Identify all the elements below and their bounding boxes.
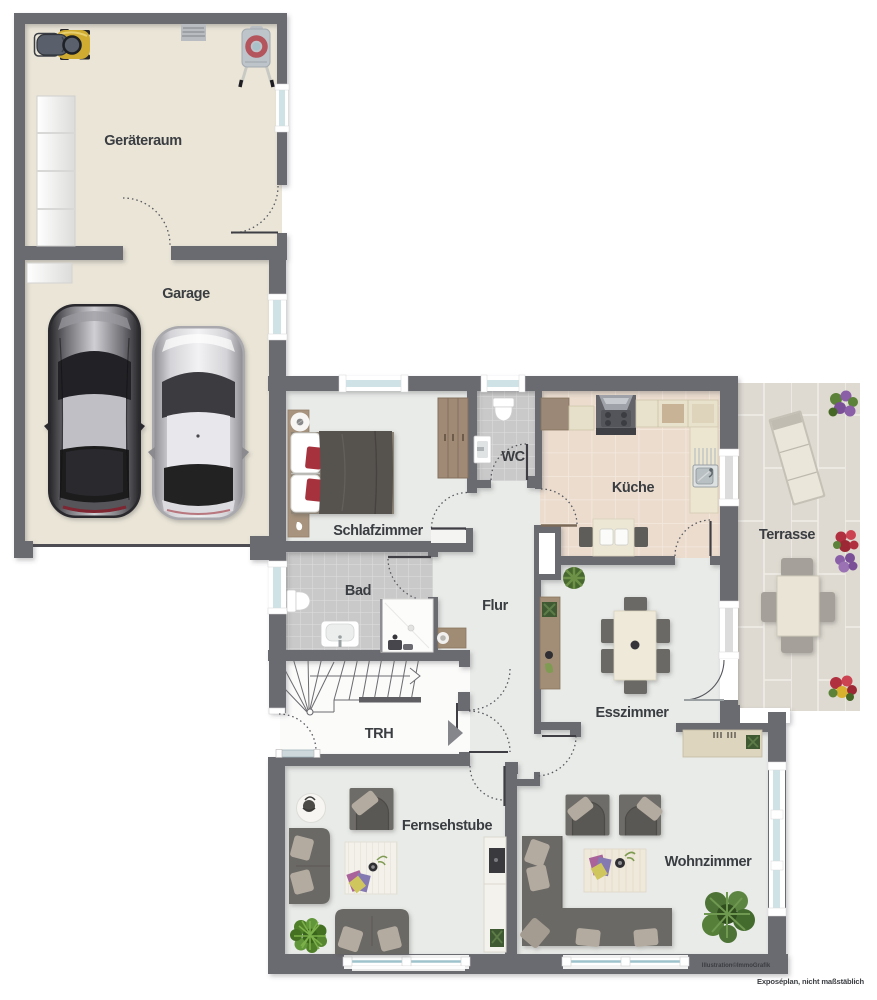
svg-text:Wohnzimmer: Wohnzimmer <box>665 854 753 870</box>
svg-text:Bad: Bad <box>345 583 371 599</box>
svg-text:Esszimmer: Esszimmer <box>596 705 670 721</box>
svg-text:TRH: TRH <box>365 726 394 742</box>
svg-text:WC: WC <box>501 449 525 465</box>
svg-text:Fernsehstube: Fernsehstube <box>402 818 493 834</box>
svg-text:Exposéplan, nicht maßstäblich: Exposéplan, nicht maßstäblich <box>757 977 865 986</box>
svg-text:Illustration©ImmoGrafik: Illustration©ImmoGrafik <box>702 962 771 969</box>
svg-text:Terrasse: Terrasse <box>759 527 816 543</box>
svg-text:Flur: Flur <box>482 598 509 614</box>
svg-text:Garage: Garage <box>162 286 210 302</box>
svg-text:Geräteraum: Geräteraum <box>104 133 181 149</box>
svg-text:Küche: Küche <box>612 480 655 496</box>
svg-text:Schlafzimmer: Schlafzimmer <box>333 523 423 539</box>
